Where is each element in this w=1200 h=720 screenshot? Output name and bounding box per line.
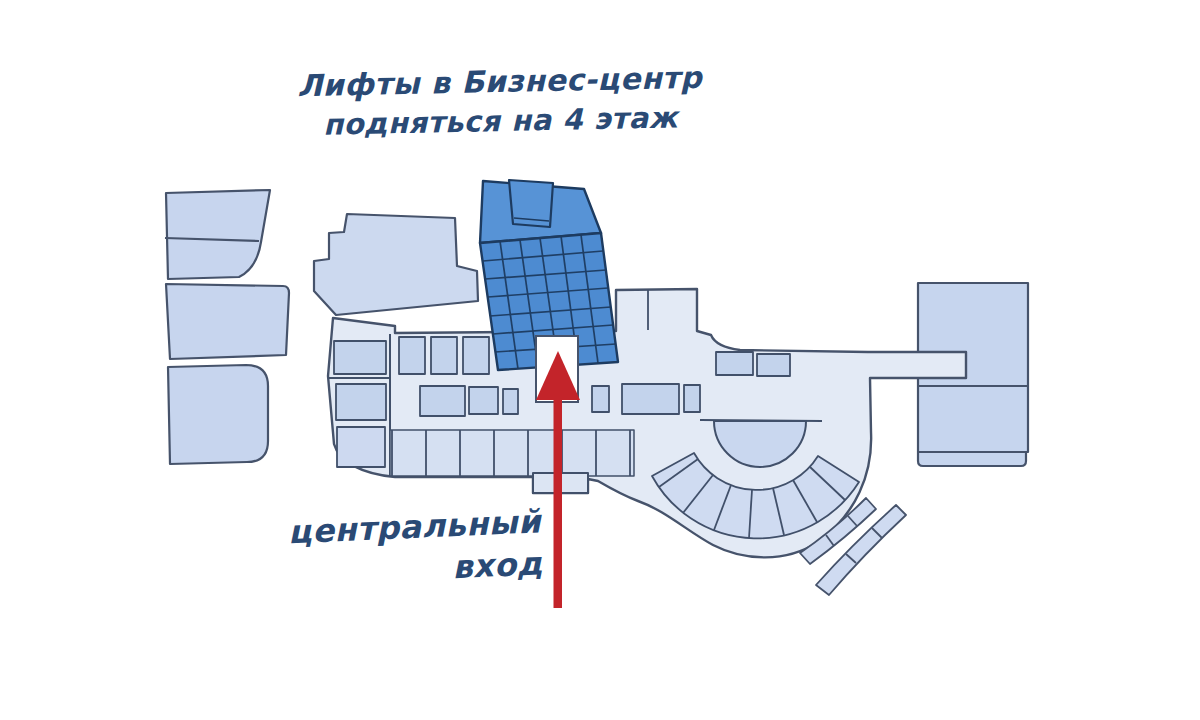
east-building-base-strip xyxy=(918,452,1026,466)
room xyxy=(684,385,700,412)
room xyxy=(431,337,457,374)
entrance-arrow-shaft xyxy=(554,396,563,608)
room xyxy=(469,387,498,414)
west-buildings xyxy=(165,190,289,464)
floor-plan: Лифты в Бизнес-центр подняться на 4 этаж… xyxy=(0,0,1200,720)
stepped-building xyxy=(314,214,478,315)
entrance-annotation: центральный вход xyxy=(278,500,543,596)
room xyxy=(334,341,386,374)
room xyxy=(420,386,465,416)
elevators-annotation: Лифты в Бизнес-центр подняться на 4 этаж xyxy=(279,57,721,144)
room xyxy=(757,354,790,376)
room xyxy=(463,337,489,374)
room xyxy=(592,386,609,412)
west-block-b xyxy=(166,284,289,359)
room xyxy=(622,384,679,414)
room xyxy=(503,389,518,414)
room xyxy=(716,352,753,375)
west-block-a xyxy=(166,190,270,279)
room xyxy=(336,384,386,420)
room xyxy=(399,337,425,374)
west-block-c xyxy=(168,365,268,464)
room xyxy=(337,427,385,467)
